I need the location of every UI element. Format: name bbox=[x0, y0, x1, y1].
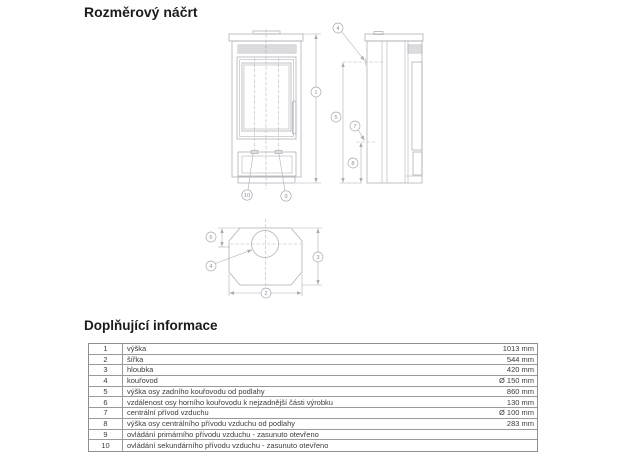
table-row: 2 šířka 544 mm bbox=[89, 355, 537, 366]
leader-4-top bbox=[216, 250, 253, 264]
top-view bbox=[216, 219, 323, 296]
table-row: 10 ovládání sekundárního přívodu vzduchu… bbox=[89, 440, 537, 451]
callout-2: 2 bbox=[261, 288, 271, 298]
front-grille bbox=[238, 45, 296, 53]
table-row: 5 výška osy zadního kouřovodu od podlahy… bbox=[89, 387, 537, 398]
front-door-frame bbox=[237, 57, 296, 139]
table-row: 8 výška osy centrálního přívodu vzduchu … bbox=[89, 419, 537, 430]
table-row: 6 vzdálenost osy horního kouřovodu k nej… bbox=[89, 397, 537, 408]
callout-1-label: 1 bbox=[314, 90, 317, 96]
table-row: 1 výška 1013 mm bbox=[89, 344, 537, 355]
front-door-frame-inner bbox=[240, 60, 294, 137]
row-value: 860 mm bbox=[507, 387, 537, 397]
table-row: 9 ovládání primárního přívodu vzduchu - … bbox=[89, 430, 537, 441]
row-value bbox=[534, 440, 537, 451]
callout-1: 1 bbox=[311, 87, 321, 97]
callout-6: 6 bbox=[206, 232, 216, 242]
front-lower-panel-inner bbox=[242, 156, 292, 173]
row-value: 1013 mm bbox=[503, 344, 537, 354]
row-number: 8 bbox=[89, 419, 123, 429]
row-number: 5 bbox=[89, 387, 123, 397]
row-value: 544 mm bbox=[507, 355, 537, 365]
row-label: ovládání primárního přívodu vzduchu - za… bbox=[123, 430, 534, 440]
row-number: 10 bbox=[89, 440, 123, 451]
callout-6-label: 6 bbox=[209, 235, 212, 241]
callout-3-label: 3 bbox=[316, 255, 319, 261]
callout-8: 8 bbox=[348, 158, 358, 168]
row-value: 420 mm bbox=[507, 365, 537, 375]
table-row: 4 kouřovod Ø 150 mm bbox=[89, 376, 537, 387]
callout-4-top: 4 bbox=[206, 261, 216, 271]
callout-7-label: 7 bbox=[353, 124, 356, 130]
row-label: kouřovod bbox=[123, 376, 499, 386]
callout-9: 9 bbox=[281, 191, 291, 201]
page: { "page": { "title": "Rozměrový náčrt" }… bbox=[0, 0, 624, 460]
front-door-glass-inner bbox=[244, 65, 289, 129]
row-number: 3 bbox=[89, 365, 123, 375]
side-grille bbox=[408, 45, 422, 53]
front-door-glass bbox=[242, 63, 291, 131]
row-value: Ø 150 mm bbox=[499, 376, 537, 386]
row-label: výška osy centrálního přívodu vzduchu od… bbox=[123, 419, 507, 429]
info-section-title: Doplňující informace bbox=[84, 318, 218, 333]
leader-9 bbox=[279, 154, 285, 191]
leader-10 bbox=[248, 154, 253, 190]
row-value: 283 mm bbox=[507, 419, 537, 429]
callout-10-label: 10 bbox=[244, 193, 250, 199]
front-view bbox=[229, 29, 321, 191]
callout-8-label: 8 bbox=[351, 161, 354, 167]
callout-3: 3 bbox=[313, 252, 323, 262]
callout-5: 5 bbox=[331, 112, 341, 122]
side-lower-panel bbox=[413, 152, 422, 175]
callout-2-label: 2 bbox=[264, 291, 267, 297]
row-value: Ø 100 mm bbox=[499, 408, 537, 418]
row-number: 7 bbox=[89, 408, 123, 418]
row-value: 130 mm bbox=[507, 397, 537, 407]
leader-7 bbox=[358, 130, 364, 141]
callout-4-side: 4 bbox=[333, 23, 343, 33]
side-door-profile bbox=[412, 62, 422, 150]
callout-9-label: 9 bbox=[284, 194, 287, 200]
row-label: výška osy zadního kouřovodu od podlahy bbox=[123, 387, 507, 397]
front-top-tab bbox=[253, 31, 280, 34]
table-row: 3 hloubka 420 mm bbox=[89, 365, 537, 376]
table-row: 7 centrální přívod vzduchu Ø 100 mm bbox=[89, 408, 537, 419]
callout-5-label: 5 bbox=[334, 115, 337, 121]
callout-10: 10 bbox=[242, 190, 252, 200]
row-label: centrální přívod vzduchu bbox=[123, 408, 499, 418]
row-number: 4 bbox=[89, 376, 123, 386]
row-label: šířka bbox=[123, 355, 507, 365]
callout-7: 7 bbox=[350, 121, 360, 131]
row-number: 6 bbox=[89, 397, 123, 407]
row-number: 1 bbox=[89, 344, 123, 354]
leader-4-side bbox=[342, 32, 365, 61]
row-label: vzdálenost osy horního kouřovodu k nejza… bbox=[123, 397, 507, 407]
side-top-plate bbox=[365, 34, 423, 41]
row-label: výška bbox=[123, 344, 503, 354]
dimensional-drawing: 1 10 9 4 5 7 8 6 bbox=[0, 0, 624, 318]
row-label: hloubka bbox=[123, 365, 507, 375]
row-number: 9 bbox=[89, 430, 123, 440]
row-label: ovládání sekundárního přívodu vzduchu - … bbox=[123, 440, 534, 451]
info-table: 1 výška 1013 mm 2 šířka 544 mm 3 hloubka… bbox=[88, 343, 538, 452]
front-lower-panel bbox=[238, 152, 296, 176]
row-number: 2 bbox=[89, 355, 123, 365]
front-plinth bbox=[238, 177, 295, 183]
front-door-handle bbox=[293, 101, 297, 134]
row-value bbox=[534, 430, 537, 440]
